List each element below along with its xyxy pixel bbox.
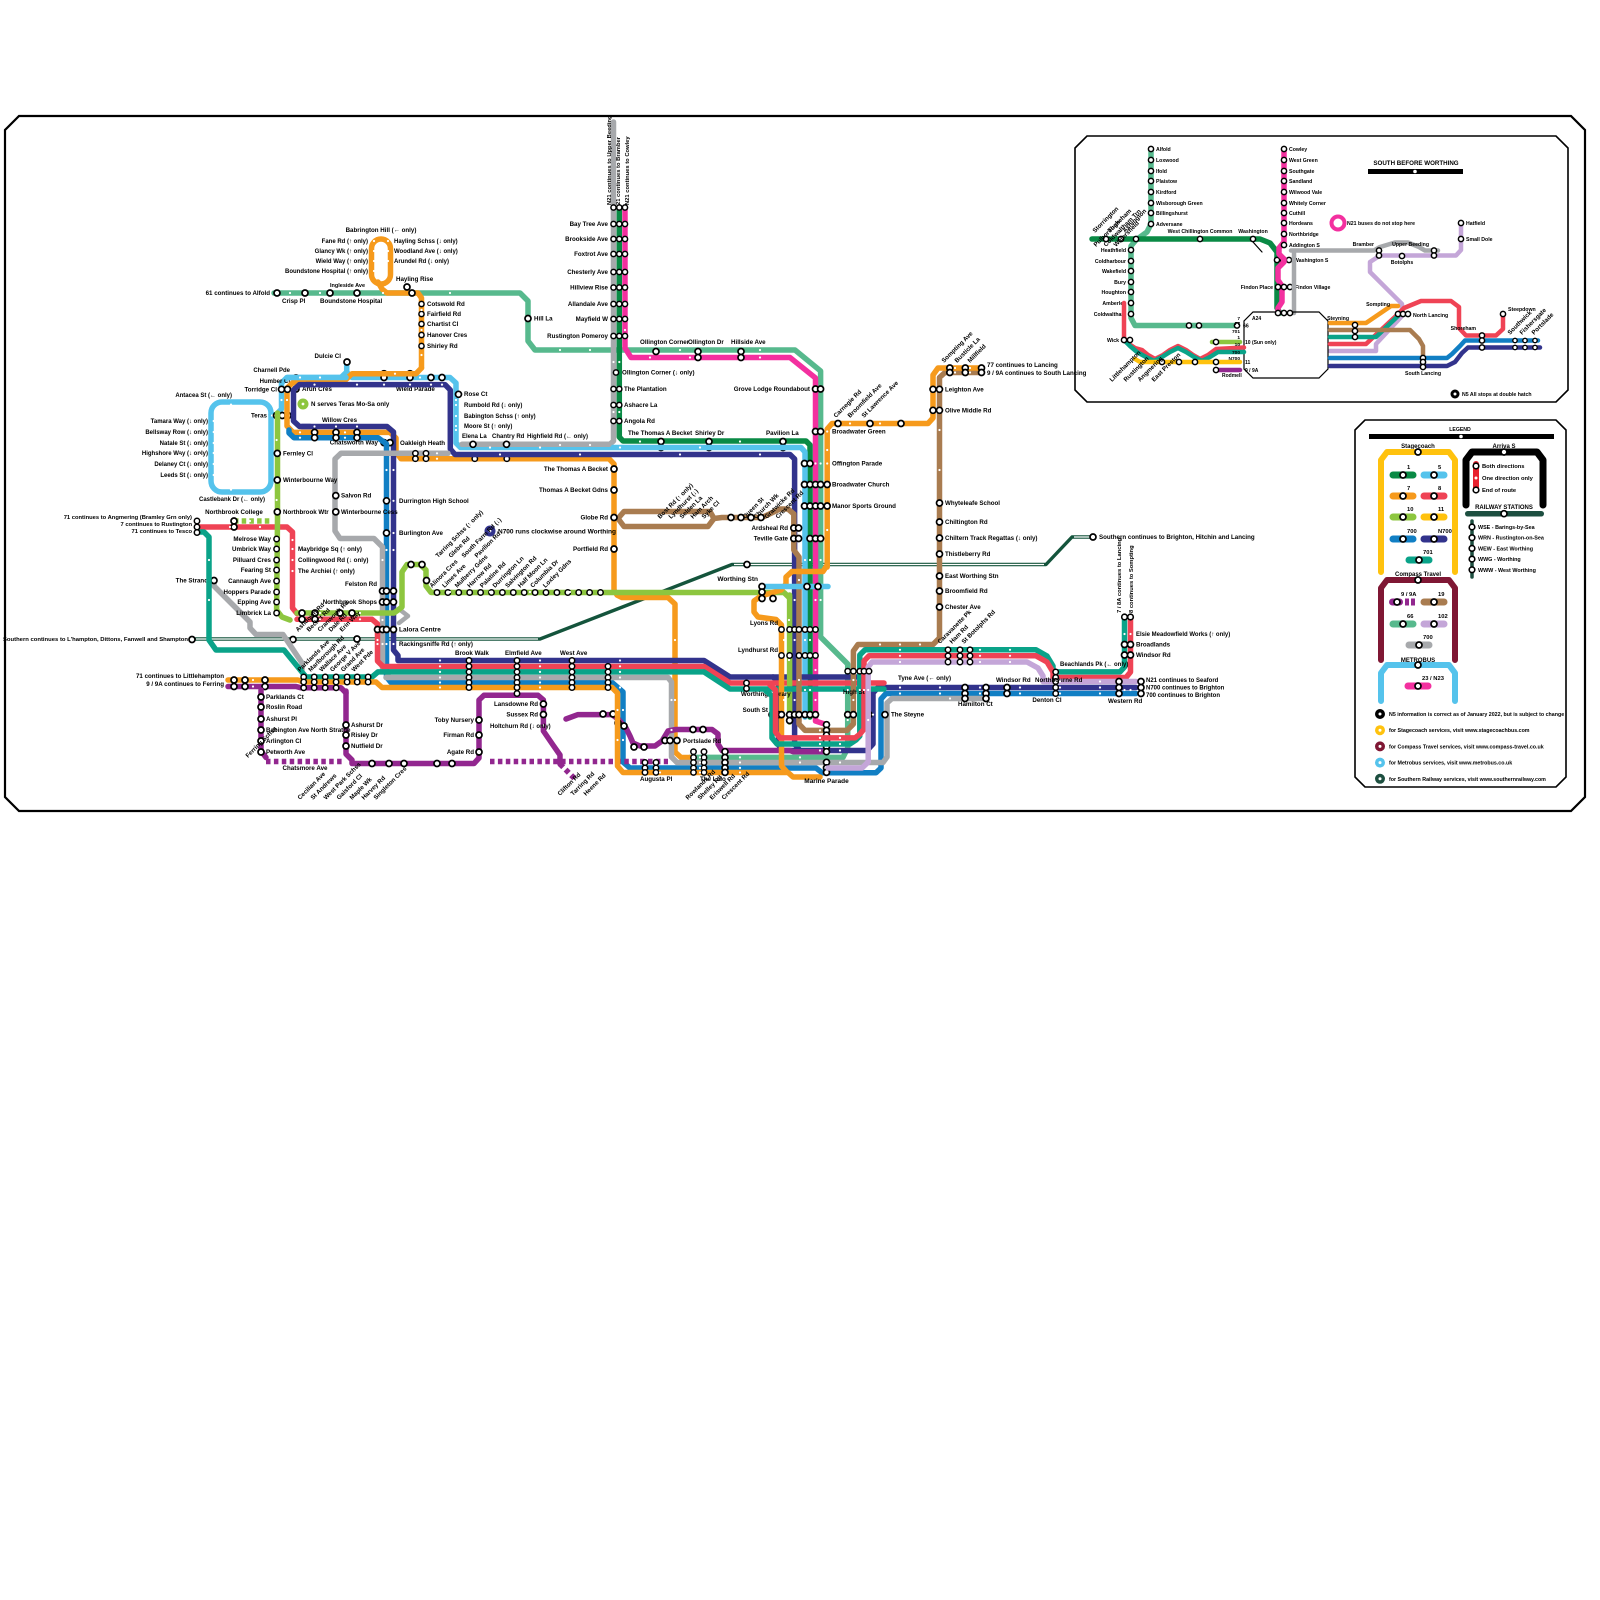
svg-text:Tamara Way (↓ only): Tamara Way (↓ only) — [151, 419, 208, 425]
svg-text:Offington Parade: Offington Parade — [832, 461, 883, 468]
svg-text:Both directions: Both directions — [1482, 464, 1525, 470]
svg-text:Wakefield: Wakefield — [1102, 269, 1126, 275]
svg-text:Bury: Bury — [1114, 280, 1126, 286]
svg-text:71 continues to Littlehampton: 71 continues to Littlehampton — [136, 673, 224, 680]
svg-text:WWW - West Worthing: WWW - West Worthing — [1478, 568, 1536, 574]
svg-text:N5 All stops at double hatch: N5 All stops at double hatch — [1462, 392, 1532, 398]
svg-text:71 continues to Tesco: 71 continues to Tesco — [132, 529, 193, 535]
svg-text:Shoreham: Shoreham — [1451, 326, 1477, 332]
svg-text:Portslade Rd: Portslade Rd — [683, 738, 721, 745]
svg-text:Chiltington Rd: Chiltington Rd — [945, 519, 988, 526]
svg-text:A24: A24 — [1252, 316, 1261, 322]
svg-text:Parklands Ct: Parklands Ct — [266, 694, 304, 701]
svg-text:Heathfield: Heathfield — [1101, 248, 1126, 254]
svg-text:West Chillington Common: West Chillington Common — [1168, 229, 1233, 235]
svg-text:The Plantation: The Plantation — [624, 386, 667, 393]
svg-text:N700 runs clockwise around Wor: N700 runs clockwise around Worthing — [498, 529, 616, 536]
svg-text:Teras: Teras — [251, 413, 268, 420]
svg-text:The Thomas A Becket: The Thomas A Becket — [628, 430, 692, 437]
svg-text:7 / 8A continues to Lancing: 7 / 8A continues to Lancing — [1117, 537, 1123, 613]
svg-text:Beachlands Pk (← only): Beachlands Pk (← only) — [1060, 662, 1128, 668]
svg-text:Dulcie Cl: Dulcie Cl — [315, 353, 342, 360]
svg-text:700: 700 — [1407, 529, 1417, 535]
svg-text:Ashurst Dr: Ashurst Dr — [351, 722, 384, 729]
svg-text:Chartist Cl: Chartist Cl — [427, 321, 459, 328]
svg-text:Ashacre La: Ashacre La — [624, 402, 658, 409]
svg-text:Thistleberry Rd: Thistleberry Rd — [945, 551, 991, 558]
svg-text:Ingleside Ave: Ingleside Ave — [330, 283, 365, 289]
svg-text:Findon Place: Findon Place — [1241, 285, 1273, 291]
svg-text:61 continues to Alfold: 61 continues to Alfold — [206, 290, 271, 297]
svg-text:Small Dole: Small Dole — [1466, 237, 1493, 243]
svg-text:Teville Gate: Teville Gate — [754, 536, 789, 543]
svg-text:for Compass Travel services, v: for Compass Travel services, visit www.c… — [1389, 744, 1544, 750]
svg-text:19: 19 — [1438, 592, 1445, 598]
svg-text:Mayfield W: Mayfield W — [576, 316, 608, 323]
svg-text:N21 continues to Seaford: N21 continues to Seaford — [1146, 678, 1219, 684]
svg-text:Castlebank Dr (← only): Castlebank Dr (← only) — [199, 497, 265, 503]
svg-text:Sussex Rd: Sussex Rd — [506, 712, 538, 719]
svg-text:N21 continues to Cowley: N21 continues to Cowley — [625, 136, 631, 205]
svg-text:71 continues to Angmering (Bra: 71 continues to Angmering (Bramley Grn o… — [64, 515, 192, 521]
svg-text:Fane Rd (↑ only): Fane Rd (↑ only) — [322, 239, 368, 245]
svg-text:Coldwaltham: Coldwaltham — [1094, 312, 1127, 318]
svg-text:Lyndhurst Rd: Lyndhurst Rd — [738, 647, 778, 654]
svg-text:WWG - Worthing: WWG - Worthing — [1478, 557, 1521, 563]
svg-text:Agate Rd: Agate Rd — [447, 749, 474, 756]
svg-text:Shirley Dr: Shirley Dr — [695, 430, 725, 437]
svg-text:One direction only: One direction only — [1482, 476, 1534, 482]
svg-text:Whitely Corner: Whitely Corner — [1289, 201, 1326, 207]
svg-text:Hordeans: Hordeans — [1289, 221, 1313, 227]
svg-text:Umbrick Way: Umbrick Way — [232, 546, 272, 553]
svg-text:Rustington Pomeroy: Rustington Pomeroy — [547, 333, 608, 340]
svg-text:Salvon Rd: Salvon Rd — [341, 493, 371, 500]
svg-text:Fairfield Rd: Fairfield Rd — [427, 311, 461, 318]
svg-text:High St: High St — [843, 689, 865, 696]
svg-text:701: 701 — [1423, 550, 1433, 556]
svg-text:9 / 9A: 9 / 9A — [1401, 592, 1417, 598]
svg-text:Petworth Ave: Petworth Ave — [266, 749, 306, 756]
svg-text:Addington S: Addington S — [1289, 243, 1320, 249]
svg-text:Boundstone Hospital (↑ only): Boundstone Hospital (↑ only) — [285, 269, 368, 275]
svg-text:Bay Tree Ave: Bay Tree Ave — [570, 221, 609, 228]
svg-text:Cowley: Cowley — [1289, 147, 1307, 153]
svg-text:Upper Beeding: Upper Beeding — [1392, 242, 1429, 248]
svg-text:Lansdowne Rd: Lansdowne Rd — [494, 701, 538, 708]
svg-text:Woodland Ave (↓ only): Woodland Ave (↓ only) — [394, 249, 458, 255]
svg-text:7: 7 — [1407, 486, 1410, 492]
svg-text:Boundstone Hospital: Boundstone Hospital — [320, 298, 382, 305]
svg-text:Coldharbour: Coldharbour — [1095, 259, 1126, 265]
svg-text:Loxwood: Loxwood — [1156, 158, 1179, 164]
svg-text:9 / 9A continues to South Lanc: 9 / 9A continues to South Lancing — [987, 370, 1087, 377]
svg-text:Ashurst Pl: Ashurst Pl — [266, 716, 297, 723]
svg-text:Broadwater Church: Broadwater Church — [832, 482, 890, 489]
svg-text:Foxtrot Ave: Foxtrot Ave — [574, 251, 608, 258]
svg-text:Northbridge: Northbridge — [1289, 232, 1319, 238]
svg-text:23 / N23: 23 / N23 — [1422, 676, 1445, 682]
svg-text:Elena La: Elena La — [462, 434, 487, 440]
svg-text:Chester Ave: Chester Ave — [945, 604, 981, 611]
svg-text:N21 continues to Upper Beeding: N21 continues to Upper Beeding — [607, 115, 613, 205]
svg-text:Thomas A Becket Gdns: Thomas A Becket Gdns — [539, 487, 609, 494]
svg-text:Brookside Ave: Brookside Ave — [565, 236, 608, 243]
svg-text:Elsie Meadowfield Works (↑ onl: Elsie Meadowfield Works (↑ only) — [1136, 632, 1230, 638]
svg-text:South Lancing: South Lancing — [1405, 371, 1441, 377]
svg-text:Hoppers Parade: Hoppers Parade — [224, 589, 272, 596]
svg-text:N700: N700 — [1229, 356, 1241, 362]
svg-text:Cannaugh Ave: Cannaugh Ave — [228, 578, 271, 585]
svg-text:Felston Rd: Felston Rd — [345, 581, 377, 588]
svg-text:Nutfield Dr: Nutfield Dr — [351, 743, 383, 750]
svg-text:10: 10 — [1235, 342, 1241, 348]
svg-text:Babington Schss (↑ only): Babington Schss (↑ only) — [464, 414, 536, 420]
svg-text:7 continues to Rustington: 7 continues to Rustington — [121, 522, 193, 528]
svg-text:Lyons Rd: Lyons Rd — [750, 620, 778, 627]
svg-text:Billingshurst: Billingshurst — [1156, 211, 1188, 217]
svg-text:Babrington Hill (← only): Babrington Hill (← only) — [346, 227, 417, 234]
svg-text:Worthing Stn: Worthing Stn — [717, 576, 758, 583]
svg-text:Grove Lodge Roundabout: Grove Lodge Roundabout — [734, 386, 810, 393]
svg-text:Globe Rd: Globe Rd — [581, 515, 609, 522]
svg-text:Hayling Schss (↓ only): Hayling Schss (↓ only) — [394, 239, 458, 245]
svg-text:21 continues to Bramber: 21 continues to Bramber — [616, 136, 622, 205]
svg-text:Broadwater Green: Broadwater Green — [832, 429, 886, 436]
svg-text:Oakleigh Heath: Oakleigh Heath — [400, 440, 445, 447]
svg-text:Pavilion La: Pavilion La — [766, 430, 799, 437]
svg-text:8 continues to Sompting: 8 continues to Sompting — [1129, 545, 1135, 613]
svg-text:Southern continues to L'hampto: Southern continues to L'hampton, Dittons… — [3, 637, 188, 643]
svg-text:77: 77 — [1235, 321, 1241, 327]
svg-text:Southgate: Southgate — [1289, 169, 1314, 175]
svg-text:Marine Parade: Marine Parade — [804, 778, 849, 785]
svg-text:Wisborough Green: Wisborough Green — [1156, 201, 1203, 207]
svg-text:Broadlands: Broadlands — [1136, 642, 1171, 649]
svg-text:Adversane: Adversane — [1156, 222, 1183, 228]
svg-text:Hillside Ave: Hillside Ave — [731, 339, 766, 346]
svg-text:Maybridge Sq (↑ only): Maybridge Sq (↑ only) — [298, 546, 362, 553]
svg-text:Chantry Rd: Chantry Rd — [492, 434, 525, 440]
svg-text:Denton Cl: Denton Cl — [1032, 697, 1061, 704]
svg-text:Northbrook College: Northbrook College — [205, 509, 263, 516]
svg-text:Risley Dr: Risley Dr — [351, 732, 378, 739]
svg-text:Fernley Cl: Fernley Cl — [283, 450, 313, 457]
svg-text:Willow Cres: Willow Cres — [322, 417, 358, 424]
svg-text:for Stagecoach services, visit: for Stagecoach services, visit www.stage… — [1389, 728, 1530, 734]
svg-text:Arlington Cl: Arlington Cl — [266, 738, 302, 745]
svg-text:Ifold: Ifold — [1156, 169, 1167, 175]
svg-text:N serves Teras Mo-Sa only: N serves Teras Mo-Sa only — [311, 401, 390, 408]
svg-text:Glancy Wk (↑ only): Glancy Wk (↑ only) — [315, 249, 368, 255]
svg-text:Rackingsniffe Rd (↑ only): Rackingsniffe Rd (↑ only) — [399, 641, 473, 648]
svg-text:Rose Ct: Rose Ct — [464, 391, 487, 398]
svg-text:N21 buses do not stop here: N21 buses do not stop here — [1347, 221, 1415, 227]
svg-text:Hanover Cres: Hanover Cres — [427, 332, 468, 339]
svg-text:Holtchurn Rd (↓ only): Holtchurn Rd (↓ only) — [490, 724, 551, 730]
svg-text:Torridge Cl: Torridge Cl — [244, 386, 277, 393]
svg-text:Rumbold Rd (↓ only): Rumbold Rd (↓ only) — [464, 403, 522, 409]
svg-text:Cuthill: Cuthill — [1289, 211, 1306, 217]
svg-text:Chesterly Ave: Chesterly Ave — [567, 269, 608, 276]
svg-text:Windsor Rd: Windsor Rd — [1136, 652, 1171, 659]
svg-text:West Ave: West Ave — [560, 650, 588, 657]
svg-text:Crisp Pl: Crisp Pl — [282, 298, 306, 305]
svg-text:Olive Middle Rd: Olive Middle Rd — [945, 407, 992, 414]
svg-text:Botolphs: Botolphs — [1391, 260, 1414, 266]
svg-text:The Thomas A Becket: The Thomas A Becket — [544, 466, 608, 473]
svg-text:N700 continues to Brighton: N700 continues to Brighton — [1146, 686, 1225, 692]
svg-text:West Green: West Green — [1289, 158, 1318, 164]
svg-text:9 / 9A continues to Ferring: 9 / 9A continues to Ferring — [146, 681, 224, 688]
svg-text:Bramber: Bramber — [1353, 242, 1374, 248]
svg-text:Leighton Ave: Leighton Ave — [945, 386, 984, 393]
svg-text:South St: South St — [743, 707, 768, 714]
svg-text:9 / 9A: 9 / 9A — [1245, 368, 1259, 374]
svg-text:Lalora Centre: Lalora Centre — [399, 627, 441, 634]
svg-text:East Worthing Stn: East Worthing Stn — [945, 573, 999, 580]
svg-text:Arundel Rd (↓ only): Arundel Rd (↓ only) — [394, 259, 449, 265]
svg-text:Limbrick La: Limbrick La — [236, 610, 271, 617]
svg-text:Whyteleafe School: Whyteleafe School — [945, 500, 1000, 507]
svg-text:Toby Nursery: Toby Nursery — [435, 717, 475, 724]
svg-text:Houghton: Houghton — [1102, 290, 1127, 296]
svg-text:Manor Sports Ground: Manor Sports Ground — [832, 503, 896, 510]
svg-text:Tyne Ave (← only): Tyne Ave (← only) — [898, 675, 951, 682]
svg-text:LEGEND: LEGEND — [1449, 427, 1471, 433]
svg-text:End of route: End of route — [1482, 488, 1517, 494]
svg-text:Hayling Rise: Hayling Rise — [396, 276, 434, 283]
svg-text:Allandale Ave: Allandale Ave — [568, 301, 609, 308]
svg-text:Alfold: Alfold — [1156, 147, 1171, 153]
svg-text:Ollington Corner: Ollington Corner — [640, 339, 690, 346]
svg-text:Collingwood Rd (↓ only): Collingwood Rd (↓ only) — [298, 557, 368, 564]
svg-text:Rodmell: Rodmell — [1222, 373, 1242, 379]
svg-text:Kirdford: Kirdford — [1156, 190, 1176, 196]
svg-text:Ardsheal Rd: Ardsheal Rd — [752, 525, 789, 532]
svg-text:Brook Walk: Brook Walk — [455, 650, 489, 657]
svg-text:700 continues to Brighton: 700 continues to Brighton — [1146, 693, 1220, 699]
svg-text:for Southern Railway services,: for Southern Railway services, visit www… — [1389, 777, 1546, 783]
svg-text:Hamilton Ct: Hamilton Ct — [958, 701, 993, 708]
svg-text:Steyning: Steyning — [1327, 316, 1349, 322]
svg-text:Hatfield: Hatfield — [1466, 221, 1485, 227]
svg-text:77 continues to Lancing: 77 continues to Lancing — [987, 362, 1058, 369]
svg-text:700: 700 — [1423, 635, 1433, 641]
svg-text:66: 66 — [1407, 614, 1414, 620]
svg-text:Elmfield Ave: Elmfield Ave — [505, 650, 542, 657]
svg-text:Fearing St: Fearing St — [241, 567, 271, 574]
svg-text:Wilwood Vale: Wilwood Vale — [1289, 190, 1322, 196]
svg-text:Ollington Corner (↓ only): Ollington Corner (↓ only) — [622, 370, 695, 377]
svg-text:Northbrook Shops: Northbrook Shops — [323, 599, 378, 606]
svg-text:Chiltern Track Regattas (↓ onl: Chiltern Track Regattas (↓ only) — [945, 535, 1038, 542]
svg-text:Broomfield Rd: Broomfield Rd — [945, 588, 988, 595]
svg-text:Hill La: Hill La — [534, 316, 553, 323]
svg-text:Moore St (↑ only): Moore St (↑ only) — [464, 424, 512, 430]
svg-text:Washington: Washington — [1238, 229, 1268, 235]
svg-text:Charnell Pde: Charnell Pde — [253, 368, 290, 374]
svg-text:Findon Village: Findon Village — [1295, 285, 1330, 291]
svg-text:N700: N700 — [1438, 529, 1452, 535]
svg-text:Antacea St (← only): Antacea St (← only) — [175, 393, 232, 399]
svg-text:Sompting: Sompting — [1366, 302, 1390, 308]
svg-text:Highfield Rd (← only): Highfield Rd (← only) — [527, 434, 588, 440]
svg-text:Wick: Wick — [1107, 338, 1119, 344]
svg-text:SOUTH BEFORE WORTHING: SOUTH BEFORE WORTHING — [1373, 160, 1458, 167]
svg-text:Angola Rd: Angola Rd — [624, 418, 655, 425]
svg-text:Pilluard Cres: Pilluard Cres — [233, 557, 272, 564]
svg-text:Windsor Rd: Windsor Rd — [996, 677, 1031, 684]
svg-text:Roslin Road: Roslin Road — [266, 704, 302, 711]
svg-text:The Steyne: The Steyne — [891, 712, 925, 719]
svg-text:11: 11 — [1245, 360, 1251, 366]
svg-text:North Lancing: North Lancing — [1413, 313, 1448, 319]
svg-text:Babington Ave North Strathe: Babington Ave North Strathe — [266, 727, 351, 734]
svg-text:N5 information is correct as o: N5 information is correct as of January … — [1389, 712, 1564, 718]
svg-text:Ollington Dr: Ollington Dr — [688, 339, 724, 346]
svg-text:Epping Ave: Epping Ave — [237, 599, 271, 606]
svg-text:102: 102 — [1438, 614, 1448, 620]
svg-text:Melrose Way: Melrose Way — [233, 536, 271, 543]
svg-text:Shirley Rd: Shirley Rd — [427, 343, 458, 350]
svg-text:Washington S: Washington S — [1294, 258, 1329, 264]
svg-text:WSE - Barings-by-Sea: WSE - Barings-by-Sea — [1478, 525, 1536, 531]
svg-text:700: 700 — [1232, 350, 1240, 356]
svg-text:Firman Rd: Firman Rd — [443, 732, 474, 739]
svg-text:The Archiei (↑ only): The Archiei (↑ only) — [298, 568, 355, 575]
svg-text:The Strand: The Strand — [176, 578, 209, 585]
svg-text:for Metrobus services, visit w: for Metrobus services, visit www.metrobu… — [1389, 761, 1512, 767]
svg-text:Steepdown: Steepdown — [1508, 307, 1536, 313]
svg-text:Delaney Ct (↓ only): Delaney Ct (↓ only) — [154, 462, 208, 468]
svg-text:Cotswold Rd: Cotswold Rd — [427, 301, 465, 308]
svg-text:Winterbourne Way: Winterbourne Way — [283, 477, 338, 484]
svg-text:Burlington Ave: Burlington Ave — [399, 530, 443, 537]
svg-text:701: 701 — [1232, 329, 1240, 335]
svg-text:1: 1 — [1237, 335, 1240, 341]
svg-text:11: 11 — [1438, 507, 1445, 513]
svg-text:WRN - Rustington-on-Sea: WRN - Rustington-on-Sea — [1478, 536, 1545, 542]
svg-text:WEW - East Worthing: WEW - East Worthing — [1478, 546, 1533, 552]
svg-text:Bellsway Row (↓ only): Bellsway Row (↓ only) — [145, 430, 208, 436]
svg-text:Portfield Rd: Portfield Rd — [573, 546, 608, 553]
svg-text:Highshore Way (↓ only): Highshore Way (↓ only) — [142, 451, 208, 457]
svg-text:Northbourne Rd: Northbourne Rd — [1035, 677, 1083, 684]
svg-text:10: 10 — [1407, 507, 1413, 513]
svg-text:10 (Sun only): 10 (Sun only) — [1245, 340, 1277, 346]
svg-text:Durrington High School: Durrington High School — [399, 498, 469, 505]
svg-text:Augusta Pl: Augusta Pl — [640, 776, 673, 783]
svg-text:Plaistow: Plaistow — [1156, 179, 1178, 185]
svg-text:Leeds St (↓ only): Leeds St (↓ only) — [160, 473, 208, 479]
svg-text:Natale St (↓ only): Natale St (↓ only) — [160, 441, 208, 447]
svg-text:Western Rd: Western Rd — [1108, 698, 1142, 705]
svg-text:Northbrook Wtr: Northbrook Wtr — [283, 509, 329, 516]
svg-text:Wield Way (↑ only): Wield Way (↑ only) — [316, 259, 368, 265]
svg-text:Winterbourne Cess: Winterbourne Cess — [341, 509, 398, 516]
svg-text:Hillview Rise: Hillview Rise — [570, 285, 608, 292]
svg-text:Sandland: Sandland — [1289, 179, 1312, 185]
